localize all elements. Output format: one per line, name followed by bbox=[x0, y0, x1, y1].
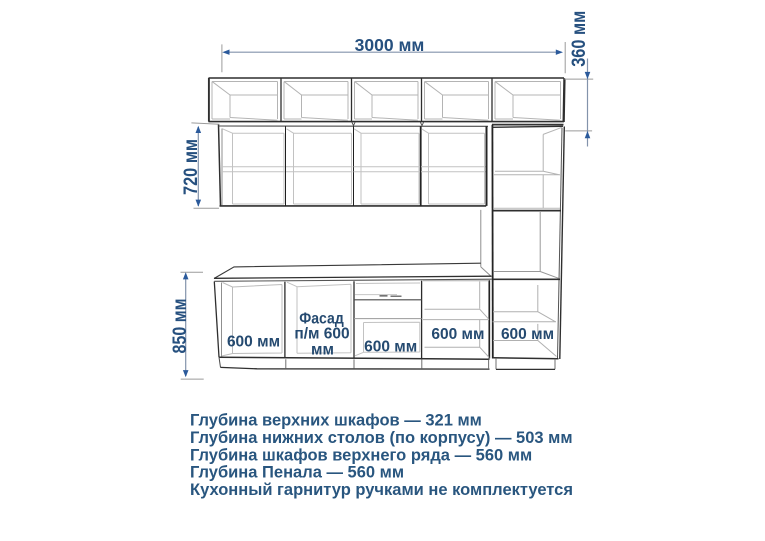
svg-text:360 мм: 360 мм bbox=[569, 11, 590, 67]
svg-text:мм: мм bbox=[311, 342, 334, 359]
svg-text:Глубина нижних столов (по корп: Глубина нижних столов (по корпусу) — 503… bbox=[190, 429, 573, 447]
svg-text:600 мм: 600 мм bbox=[364, 338, 417, 355]
svg-text:600 мм: 600 мм bbox=[431, 326, 484, 343]
svg-text:3000 мм: 3000 мм bbox=[355, 35, 425, 55]
svg-text:п/м 600: п/м 600 bbox=[294, 326, 349, 343]
svg-text:720 мм: 720 мм bbox=[181, 139, 202, 195]
svg-text:Кухонный гарнитур ручками не к: Кухонный гарнитур ручками не комплектует… bbox=[190, 481, 573, 499]
svg-text:850 мм: 850 мм bbox=[170, 299, 191, 354]
svg-text:600 мм: 600 мм bbox=[501, 326, 554, 343]
svg-text:Глубина верхних шкафов — 321 м: Глубина верхних шкафов — 321 мм bbox=[190, 412, 482, 430]
svg-text:600 мм: 600 мм bbox=[227, 334, 280, 351]
svg-text:Глубина шкафов верхнего ряда —: Глубина шкафов верхнего ряда — 560 мм bbox=[190, 446, 532, 464]
svg-text:Глубина Пенала — 560 мм: Глубина Пенала — 560 мм bbox=[190, 464, 404, 482]
